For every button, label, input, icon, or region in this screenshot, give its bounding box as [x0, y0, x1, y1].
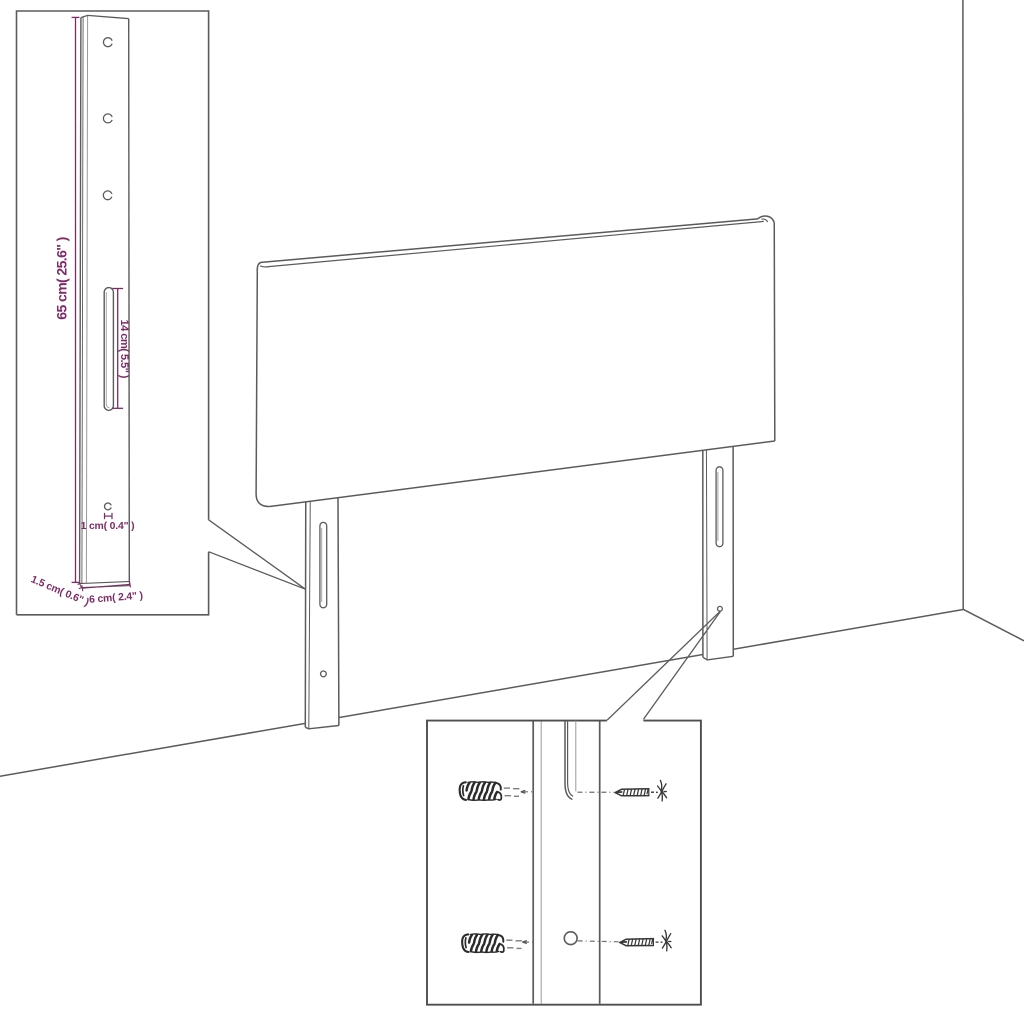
svg-text:1 cm( 0.4" ): 1 cm( 0.4" ) — [81, 521, 135, 532]
svg-text:65 cm( 25.6" ): 65 cm( 25.6" ) — [53, 237, 69, 320]
svg-text:14 cm( 5.5" ): 14 cm( 5.5" ) — [118, 320, 130, 379]
